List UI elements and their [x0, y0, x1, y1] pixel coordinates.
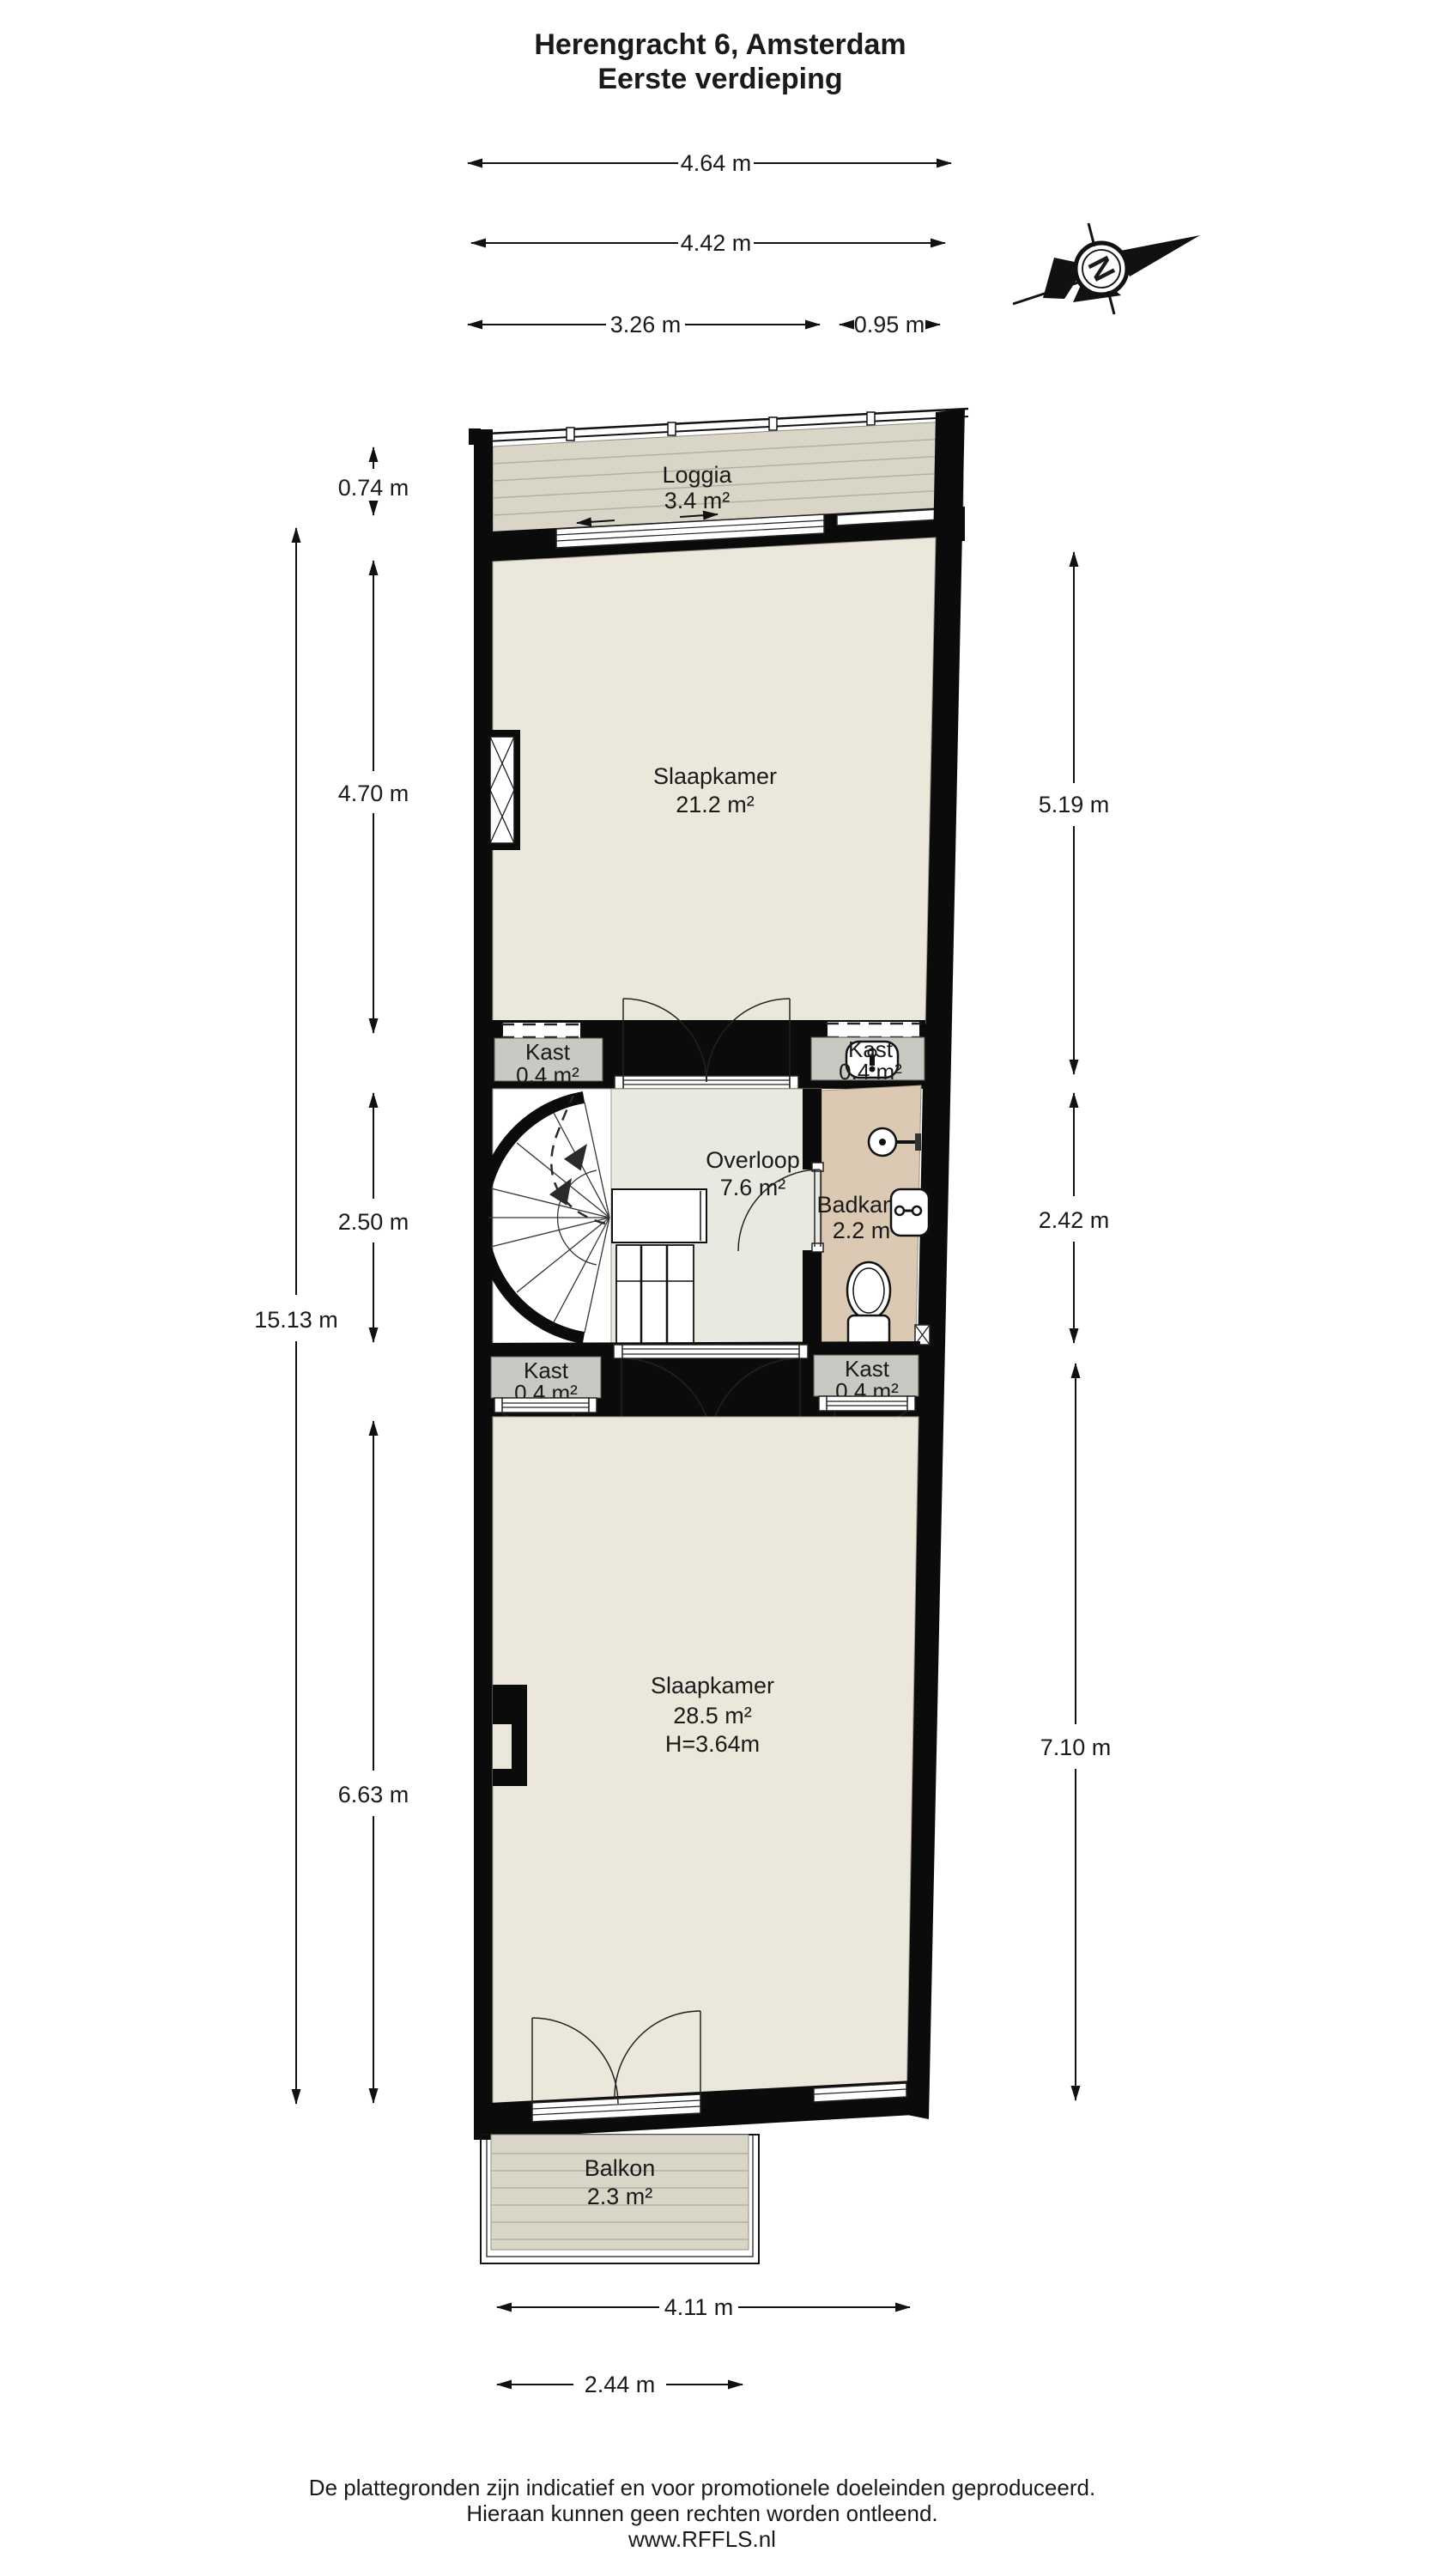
dim-label: 6.63 m — [338, 1782, 409, 1807]
title-line1: Herengracht 6, Amsterdam — [534, 28, 906, 61]
room-slaapkamer-boven: Slaapkamer 21.2 m² — [484, 538, 936, 1024]
room-area: 28.5 m² — [673, 1703, 752, 1728]
radiator-icon — [484, 730, 520, 850]
room-area: 2.3 m² — [587, 2184, 653, 2209]
room-area: 21.2 m² — [676, 792, 755, 817]
dim-top-inner: 4.42 m — [471, 230, 945, 256]
dim-left-overloop: 2.50 m — [338, 1093, 409, 1342]
title-line2: Eerste verdieping — [597, 63, 842, 95]
dim-label: 7.10 m — [1040, 1735, 1112, 1760]
dim-top-left-part: 3.26 m — [468, 312, 820, 337]
dim-left-slaapkamer-onder: 6.63 m — [338, 1421, 409, 2103]
plan-title: Herengracht 6, Amsterdam Eerste verdiepi… — [534, 28, 906, 95]
dim-label: 4.42 m — [681, 230, 752, 256]
room-ceiling-height: H=3.64m — [665, 1731, 760, 1757]
dim-right-slaapkamer-onder: 7.10 m — [1040, 1364, 1112, 2100]
dim-label: 2.50 m — [338, 1209, 409, 1235]
room-label: Kast — [525, 1039, 571, 1065]
room-area: 7.6 m² — [720, 1175, 786, 1200]
dim-left-slaapkamer-boven: 4.70 m — [338, 561, 409, 1033]
room-area: 2.2 m² — [833, 1218, 899, 1243]
room-balkon: Balkon 2.3 m² — [481, 2135, 759, 2263]
dim-left-loggia: 0.74 m — [338, 447, 409, 515]
room-label: Slaapkamer — [651, 1673, 774, 1698]
floorplan-page: Herengracht 6, Amsterdam Eerste verdiepi… — [0, 0, 1449, 2576]
dim-label: 2.44 m — [585, 2372, 656, 2397]
dim-label: 0.74 m — [338, 475, 409, 501]
dim-label: 4.64 m — [681, 150, 752, 176]
footer-website: www.RFFLS.nl — [627, 2526, 776, 2552]
dim-label: 2.42 m — [1039, 1207, 1110, 1233]
dim-label: 4.11 m — [664, 2294, 734, 2320]
dim-label: 5.19 m — [1039, 792, 1110, 817]
dim-top-right-part: 0.95 m — [840, 312, 940, 337]
footer-disclaimer: De plattegronden zijn indicatief en voor… — [309, 2475, 1095, 2552]
compass-north-icon: N — [1013, 223, 1200, 314]
room-label: Slaapkamer — [653, 763, 777, 789]
washbasin-icon — [891, 1189, 929, 1236]
room-area: 0.4 m² — [839, 1059, 902, 1084]
dim-label: 15.13 m — [254, 1307, 338, 1333]
dim-label: 0.95 m — [854, 312, 925, 337]
dim-top-overall: 4.64 m — [468, 150, 951, 176]
toilet-icon — [847, 1262, 890, 1346]
dim-bottom-overall: 4.11 m — [497, 2294, 910, 2320]
dim-label: 3.26 m — [610, 312, 682, 337]
dim-label: 4.70 m — [338, 781, 409, 806]
dim-right-slaapkamer-boven: 5.19 m — [1039, 552, 1110, 1074]
room-area: 0.4 m² — [516, 1062, 579, 1088]
footer-line2: Hieraan kunnen geen rechten worden ontle… — [466, 2500, 937, 2526]
chimney-breast — [493, 1685, 527, 1786]
wall-left — [474, 429, 493, 2140]
room-label-loggia: Loggia — [662, 462, 732, 488]
footer-line1: De plattegronden zijn indicatief en voor… — [309, 2475, 1095, 2500]
dim-right-badkamer: 2.42 m — [1039, 1093, 1110, 1343]
room-slaapkamer-onder: Slaapkamer 28.5 m² H=3.64m — [493, 1417, 919, 2108]
room-label: Overloop — [706, 1147, 800, 1173]
room-label: Balkon — [585, 2155, 656, 2181]
room-area-loggia: 3.4 m² — [664, 488, 731, 513]
dim-bottom-balkon: 2.44 m — [497, 2372, 743, 2397]
dim-left-totaal: 15.13 m — [254, 528, 338, 2104]
